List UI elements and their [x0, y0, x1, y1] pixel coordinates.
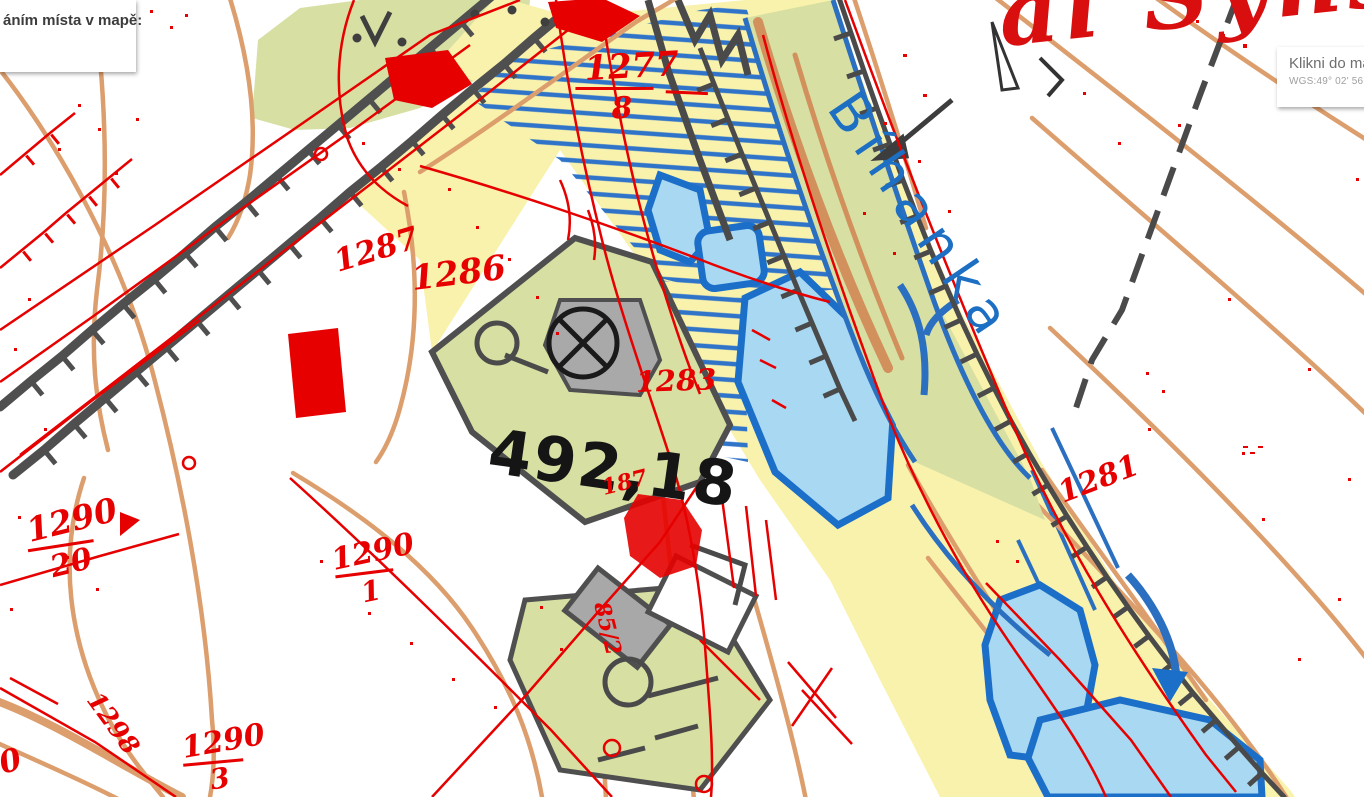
- tooltip-title: Klikni do map: [1289, 55, 1364, 72]
- boundary-dashed-line: [1072, 0, 1238, 420]
- parcel-label-1283: 1283: [635, 362, 717, 399]
- map-viewer: Bíhanka 492,18 al Syns 1277 8 1290 20 12…: [0, 0, 1364, 797]
- tooltip-coordinates: WGS:49° 02' 56.6439: [1289, 76, 1364, 87]
- svg-text:1277: 1277: [583, 44, 680, 89]
- svg-text:1: 1: [358, 573, 384, 609]
- parcel-label-1287: 1287: [330, 220, 423, 280]
- parcel-label-1290-3: 1290 3: [177, 717, 273, 797]
- parcel-label-90: 90: [0, 741, 26, 788]
- search-by-map-label: áním místa v mapě:: [0, 0, 136, 29]
- parcel-label-1290-1: 1290 1: [328, 526, 425, 614]
- svg-text:8: 8: [610, 91, 634, 127]
- map-cursor-tooltip: Klikni do map WGS:49° 02' 56.6439: [1277, 47, 1364, 107]
- search-by-map-panel: áním místa v mapě:: [0, 0, 136, 72]
- svg-text:1290: 1290: [179, 717, 267, 766]
- svg-text:1290: 1290: [328, 526, 417, 578]
- map-canvas[interactable]: Bíhanka 492,18 al Syns 1277 8 1290 20 12…: [0, 0, 1364, 797]
